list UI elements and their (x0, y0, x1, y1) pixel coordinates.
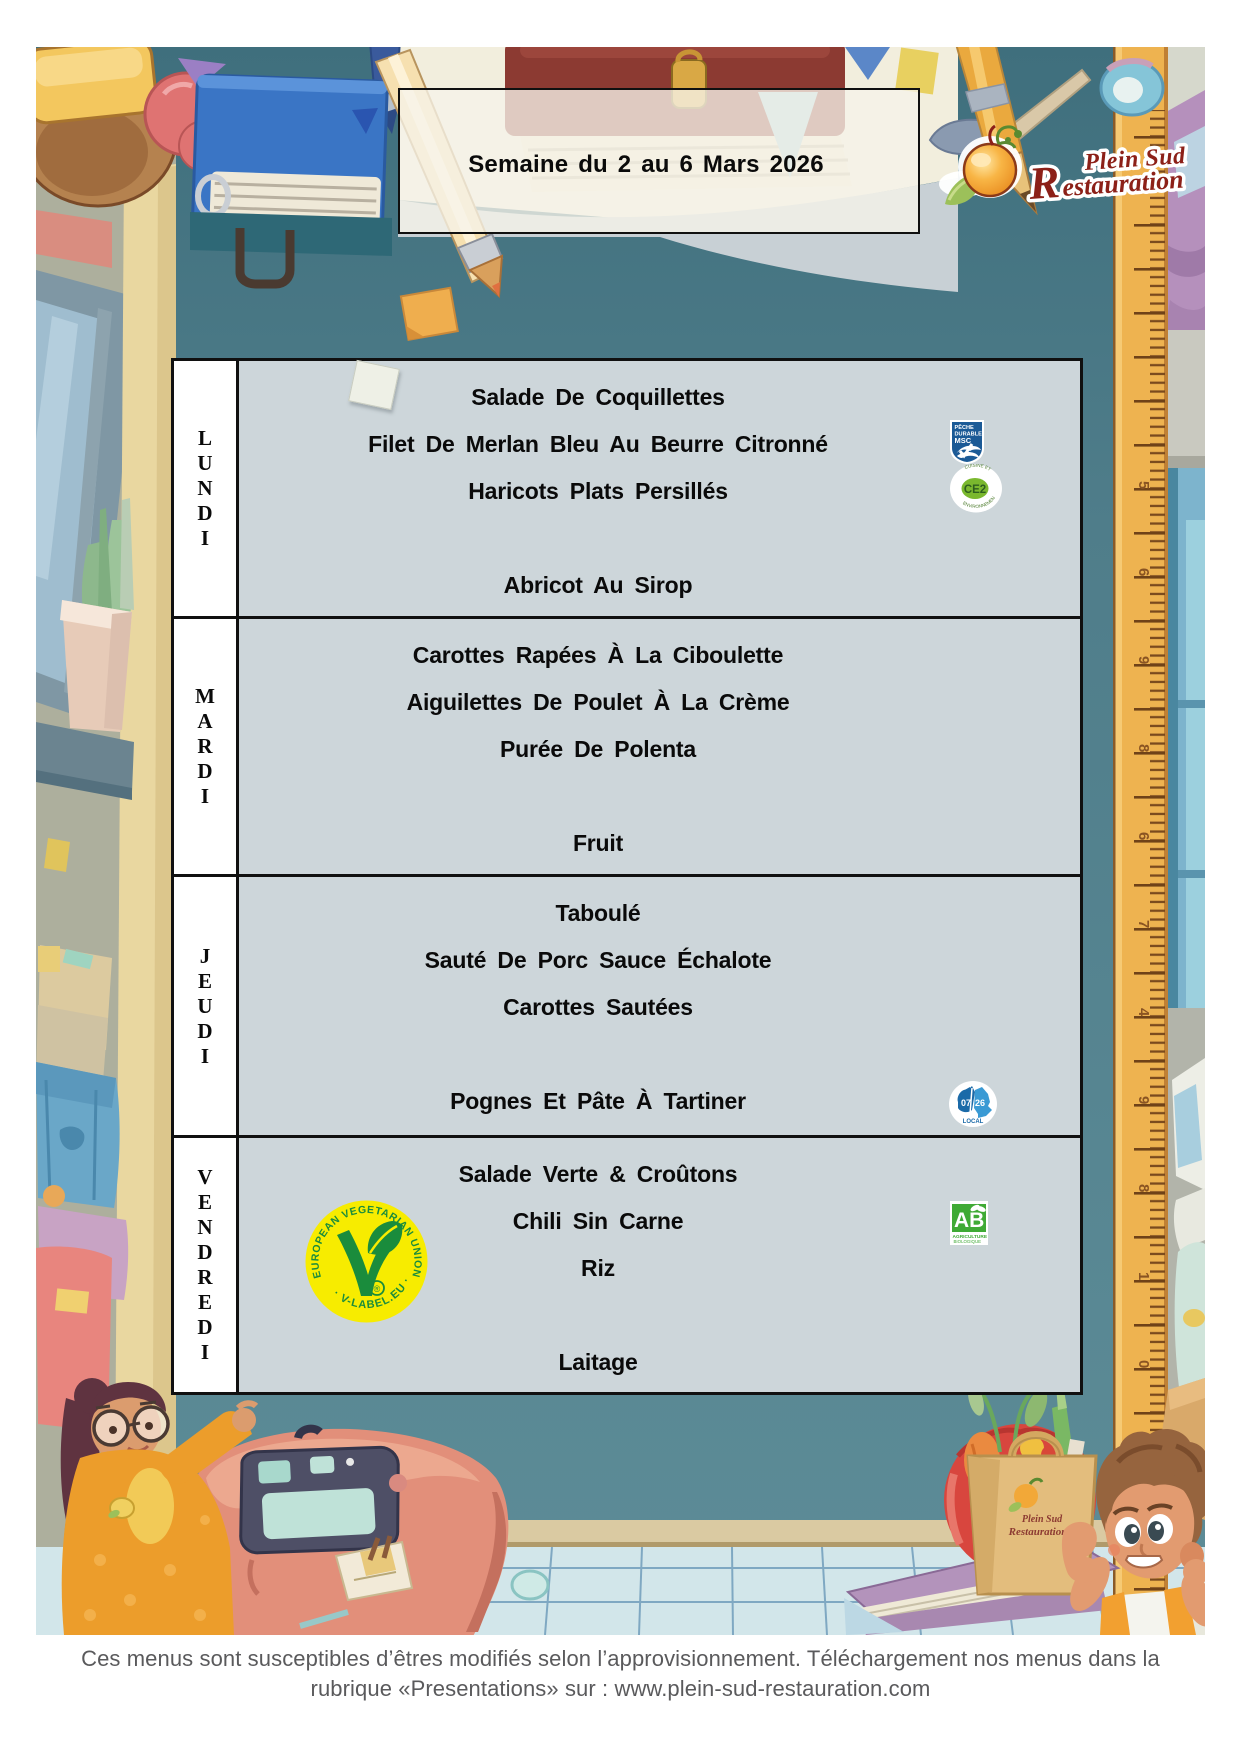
svg-text:0: 0 (1135, 1360, 1152, 1368)
svg-text:07: 07 (961, 1098, 971, 1108)
svg-text:4: 4 (1135, 1008, 1152, 1017)
svg-text:Restauration: Restauration (1008, 1526, 1068, 1538)
svg-text:6: 6 (1135, 568, 1152, 576)
svg-text:26: 26 (975, 1098, 985, 1108)
svg-text:MSC: MSC (955, 436, 972, 445)
svg-text:9: 9 (1135, 656, 1152, 664)
svg-text:Plein Sud: Plein Sud (1022, 1514, 1063, 1525)
svg-text:PÊCHE: PÊCHE (955, 423, 975, 431)
svg-text:estauration: estauration (1061, 165, 1184, 202)
svg-text:®: ® (374, 1284, 381, 1294)
svg-text:1: 1 (1135, 1272, 1152, 1280)
svg-text:9: 9 (1135, 1096, 1152, 1104)
svg-text:6: 6 (1135, 832, 1152, 840)
svg-text:R: R (1026, 156, 1061, 209)
svg-text:5: 5 (1135, 481, 1152, 489)
svg-text:CE2: CE2 (964, 484, 986, 496)
svg-text:8: 8 (1135, 744, 1152, 752)
svg-text:8: 8 (1135, 1184, 1152, 1192)
svg-text:7: 7 (1135, 920, 1152, 928)
svg-text:AB: AB (954, 1209, 984, 1232)
svg-text:BIOLOGIQUE: BIOLOGIQUE (954, 1239, 982, 1244)
svg-text:LOCAL: LOCAL (963, 1119, 984, 1125)
